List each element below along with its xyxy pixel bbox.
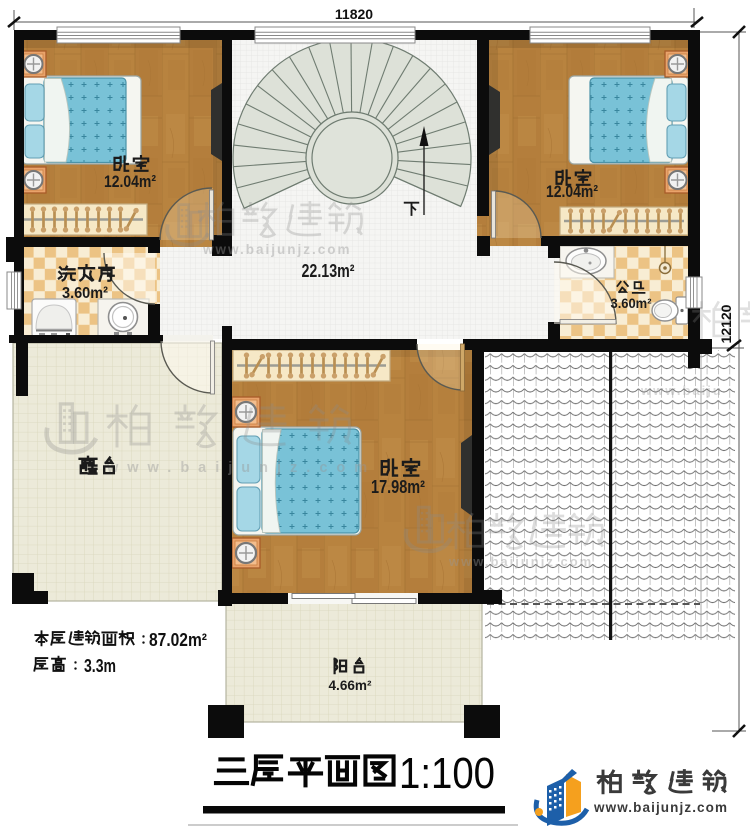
- svg-text:87.02m²: 87.02m²: [149, 630, 207, 650]
- svg-text:www.baijunjz.com: www.baijunjz.com: [593, 800, 728, 815]
- svg-text:3.3m: 3.3m: [84, 656, 116, 676]
- svg-text:www.baijunjz.com: www.baijunjz.com: [202, 242, 352, 257]
- svg-text:www.baijunjz.com: www.baijunjz.com: [106, 460, 376, 476]
- svg-text:17.98m²: 17.98m²: [371, 477, 425, 497]
- svg-text:3.60m²: 3.60m²: [62, 285, 108, 302]
- svg-text:12.04m²: 12.04m²: [104, 172, 156, 191]
- svg-text:12.04m²: 12.04m²: [546, 182, 598, 201]
- svg-text:3.60m²: 3.60m²: [611, 295, 652, 311]
- svg-text:www.baijunjz.com: www.baijunjz.com: [448, 554, 593, 569]
- svg-text:11820: 11820: [335, 6, 373, 22]
- svg-text:22.13m²: 22.13m²: [302, 261, 355, 281]
- svg-text:12120: 12120: [718, 304, 734, 343]
- svg-text:1:100: 1:100: [399, 749, 495, 798]
- svg-text:4.66m²: 4.66m²: [329, 677, 372, 693]
- svg-text:www.baiju: www.baiju: [640, 383, 723, 398]
